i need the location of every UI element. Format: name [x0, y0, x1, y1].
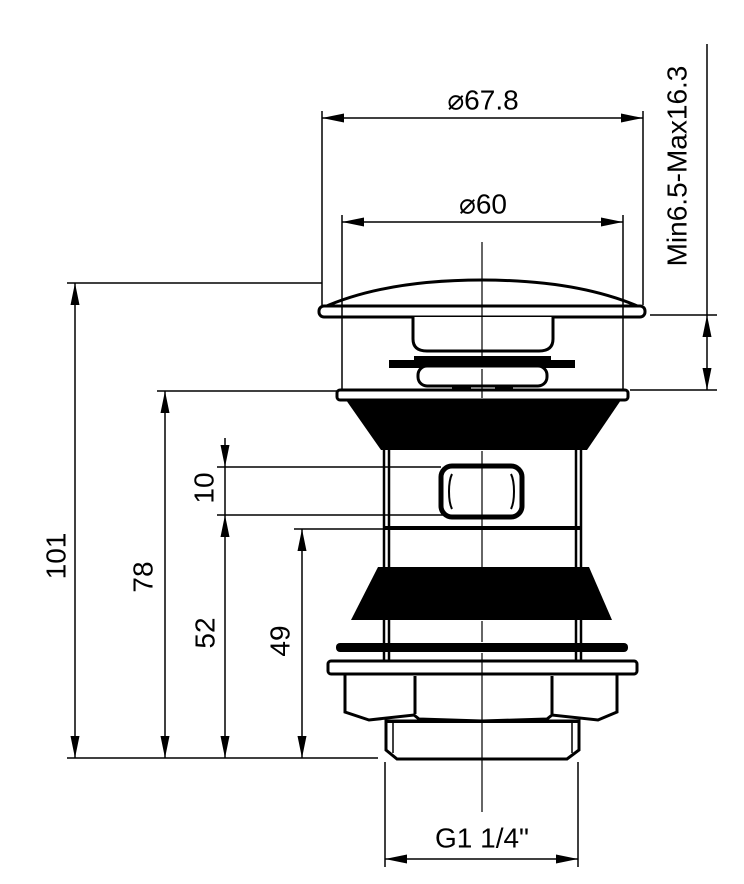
dim-label-height-52: 52 [190, 617, 221, 648]
arrow-up-icon [298, 529, 307, 551]
arrow-down-icon [221, 445, 230, 467]
arrow-up-icon [221, 515, 230, 537]
drawing-svg: ⌀67.8 ⌀60 Min6.5-Max16.3 101 78 [0, 0, 744, 884]
arrow-up-icon [703, 315, 712, 337]
dim-label-overall-height: 101 [41, 533, 72, 580]
washer-bar [336, 643, 628, 652]
seal-cone [351, 567, 612, 620]
arrow-down-icon [703, 368, 712, 390]
dim-label-flange-diameter: ⌀60 [459, 189, 507, 220]
arrow-right-icon [621, 114, 643, 123]
arrow-down-icon [298, 736, 307, 758]
arrow-down-icon [71, 736, 80, 758]
arrow-left-icon [385, 855, 407, 864]
funnel-cone [346, 400, 621, 450]
dim-label-cap-diameter: ⌀67.8 [447, 85, 518, 116]
arrow-up-icon [161, 391, 170, 413]
arrow-down-icon [221, 736, 230, 758]
dim-label-height-49: 49 [265, 625, 296, 656]
hex-nut [345, 674, 617, 721]
dim-label-thread-size: G1 1/4" [435, 823, 529, 854]
dim-body-height: 78 [128, 391, 338, 758]
arrow-down-icon [161, 736, 170, 758]
dim-label-mounting-range: Min6.5-Max16.3 [662, 66, 693, 267]
arrow-right-icon [601, 218, 623, 227]
arrow-left-icon [322, 114, 344, 123]
stem-housing [413, 317, 553, 351]
arrow-right-icon [556, 855, 578, 864]
technical-drawing-canvas: ⌀67.8 ⌀60 Min6.5-Max16.3 101 78 [0, 0, 744, 884]
dim-label-overflow-height: 10 [189, 472, 220, 503]
dim-extension-lines [217, 467, 444, 515]
arrow-up-icon [71, 283, 80, 305]
dim-overall-height: 101 [41, 283, 323, 758]
dim-extension-lines [630, 315, 717, 390]
dim-label-body-height: 78 [128, 561, 159, 592]
arrow-left-icon [342, 218, 364, 227]
